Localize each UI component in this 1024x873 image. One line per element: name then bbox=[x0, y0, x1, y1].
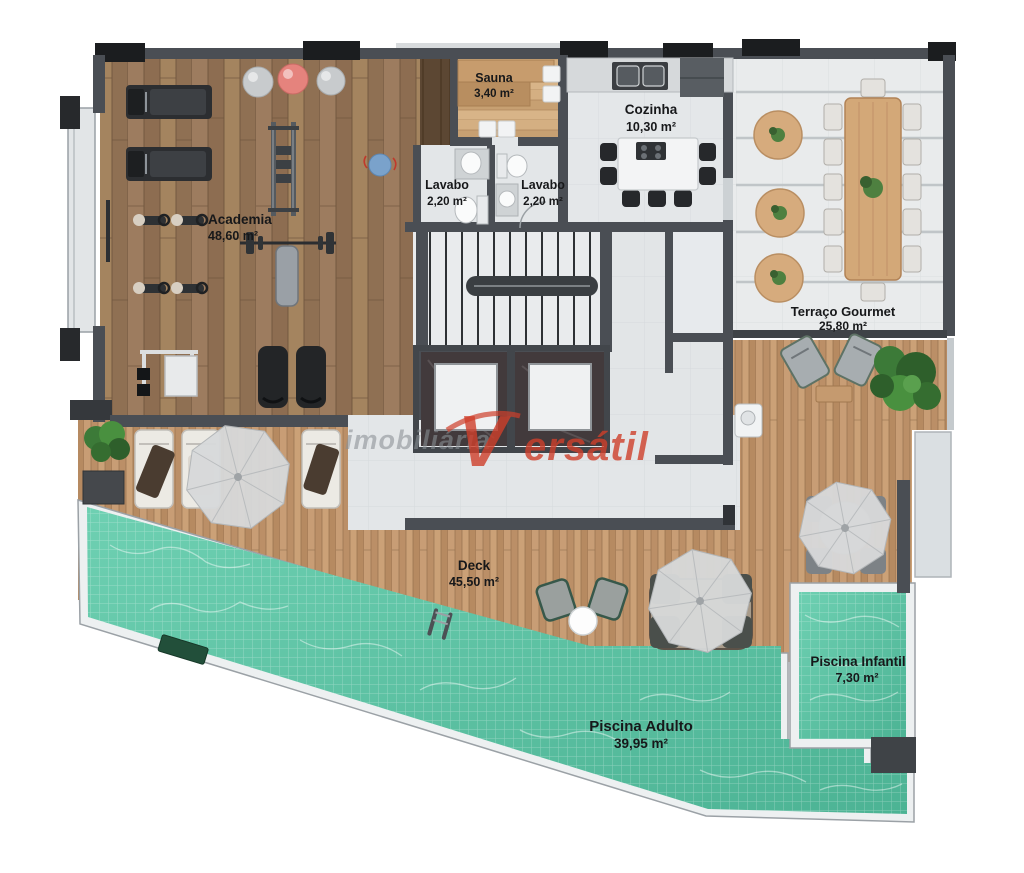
label-piscina-adulto: Piscina Adulto bbox=[589, 718, 693, 735]
watermark-rest: ersátil bbox=[524, 425, 649, 469]
label-deck: Deck bbox=[458, 558, 491, 573]
sun-lounger bbox=[135, 430, 176, 508]
round-table bbox=[755, 254, 803, 302]
round-table bbox=[754, 111, 802, 159]
area-lavabo-2: 2,20 m² bbox=[523, 196, 563, 208]
deck-side-table bbox=[816, 386, 852, 402]
area-cozinha: 10,30 m² bbox=[626, 120, 676, 134]
label-academia: Academia bbox=[208, 212, 272, 227]
label-piscina-infantil: Piscina Infantil bbox=[810, 654, 905, 669]
area-piscina-infantil: 7,30 m² bbox=[835, 671, 878, 685]
treadmill bbox=[126, 147, 212, 181]
label-lavabo-1: Lavabo bbox=[425, 178, 469, 192]
wall-mirror bbox=[106, 200, 110, 262]
area-sauna: 3,40 m² bbox=[474, 88, 514, 100]
pool-equipment-block bbox=[871, 737, 916, 773]
label-cozinha: Cozinha bbox=[625, 102, 678, 117]
treadmill bbox=[126, 85, 212, 119]
planter-box bbox=[83, 471, 124, 504]
area-lavabo-1: 2,20 m² bbox=[427, 196, 467, 208]
floor-plan-image: Academia 48,60 m² Sauna 3,40 m² Lavabo 2… bbox=[0, 0, 1024, 873]
right-balcony-rail bbox=[947, 338, 954, 430]
storage-room-floor bbox=[673, 228, 723, 336]
right-balcony-walkway bbox=[915, 432, 951, 577]
area-academia: 48,60 m² bbox=[208, 229, 258, 243]
sun-lounger bbox=[302, 430, 340, 508]
area-piscina-adulto: 39,95 m² bbox=[614, 736, 669, 751]
label-lavabo-2: Lavabo bbox=[521, 178, 565, 192]
left-balcony bbox=[68, 108, 95, 332]
area-terraco: 25,80 m² bbox=[819, 319, 867, 333]
dining-table-long bbox=[824, 79, 921, 301]
sauna-lockers bbox=[420, 55, 455, 145]
floor-plan-svg: Academia 48,60 m² Sauna 3,40 m² Lavabo 2… bbox=[0, 0, 1024, 873]
elevator-cab-2 bbox=[529, 364, 591, 430]
round-side-table bbox=[569, 607, 597, 635]
label-sauna: Sauna bbox=[475, 71, 514, 85]
terrace-furniture bbox=[754, 79, 921, 302]
cooktop bbox=[636, 142, 666, 160]
area-deck: 45,50 m² bbox=[449, 575, 499, 589]
round-table bbox=[756, 189, 804, 237]
label-terraco: Terraço Gourmet bbox=[791, 304, 896, 319]
